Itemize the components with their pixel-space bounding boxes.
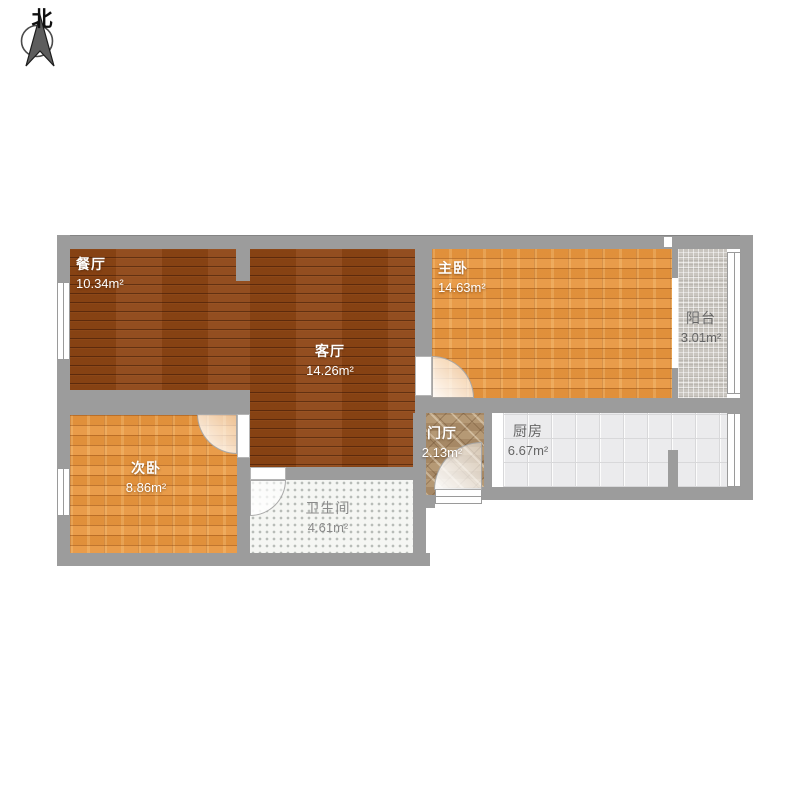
wall-opening	[664, 237, 672, 247]
door-leaf-master-bedroom	[415, 356, 432, 396]
room-name: 次卧	[113, 461, 179, 475]
wall-segment	[57, 390, 250, 415]
window-dining	[57, 282, 70, 360]
room-name: 餐厅	[76, 257, 140, 271]
wall-segment	[484, 413, 492, 495]
room-area: 14.26m²	[296, 364, 364, 377]
north-compass: 北	[8, 2, 72, 74]
wall-segment	[57, 235, 753, 249]
wall-segment	[236, 248, 250, 281]
label-bathroom: 卫生间 4.61m²	[290, 501, 366, 534]
room-name: 卫生间	[290, 501, 366, 515]
room-area: 8.86m²	[113, 481, 179, 494]
room-area: 4.61m²	[290, 521, 366, 534]
floorplan-canvas: 北 餐厅 10.34m² 客厅 14.26m²	[0, 0, 800, 800]
room-area: 3.01m²	[672, 331, 730, 344]
room-name: 阳台	[672, 311, 730, 325]
door-leaf-bathroom	[250, 467, 286, 480]
wall-segment	[57, 553, 430, 566]
wall-segment	[672, 248, 678, 278]
room-area: 2.13m²	[413, 446, 471, 459]
wall-segment	[740, 235, 753, 500]
label-kitchen: 厨房 6.67m²	[494, 424, 562, 457]
wall-segment	[668, 450, 678, 487]
wall-segment	[672, 368, 678, 398]
wall-segment	[482, 487, 753, 500]
window-second-bedroom	[57, 468, 70, 516]
room-name: 厨房	[494, 424, 562, 438]
label-master-bedroom: 主卧 14.63m²	[438, 261, 502, 294]
entrance-door-threshold	[435, 488, 482, 504]
label-living: 客厅 14.26m²	[296, 344, 364, 377]
north-label: 北	[32, 8, 53, 31]
compass-icon: 北	[8, 2, 72, 74]
wall-segment	[413, 495, 435, 508]
room-name: 门厅	[413, 426, 471, 440]
window-kitchen	[727, 413, 741, 487]
room-area: 6.67m²	[494, 444, 562, 457]
label-dining: 餐厅 10.34m²	[76, 257, 140, 290]
wall-segment	[415, 398, 753, 413]
label-entry-hall: 门厅 2.13m²	[413, 426, 471, 459]
room-area: 14.63m²	[438, 281, 502, 294]
label-balcony: 阳台 3.01m²	[672, 311, 730, 344]
door-leaf-second-bedroom	[237, 414, 250, 458]
label-second-bedroom: 次卧 8.86m²	[113, 461, 179, 494]
room-name: 主卧	[438, 261, 502, 275]
room-name: 客厅	[296, 344, 364, 358]
room-area: 10.34m²	[76, 277, 140, 290]
